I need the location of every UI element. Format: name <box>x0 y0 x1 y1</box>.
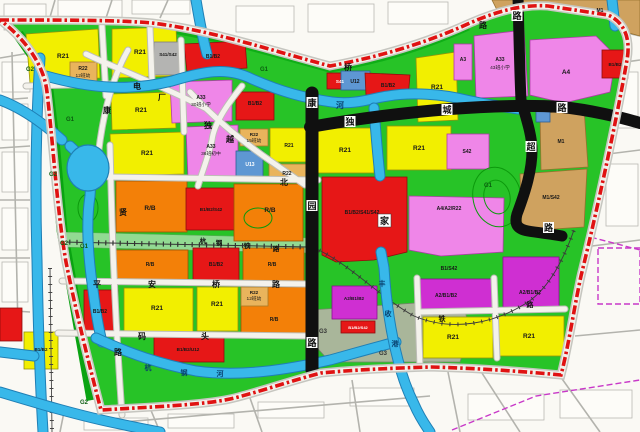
parcel-label: S42 <box>463 149 472 155</box>
road-char-bei: 北 <box>280 177 288 187</box>
road-char-matou: 头 <box>201 331 209 341</box>
zone-label-g2: G2 <box>60 241 69 247</box>
river-char-fengshou: 丰 <box>379 279 386 288</box>
parcel-label: A33 <box>206 144 215 150</box>
parcel-label: B1/B2/S42 <box>200 207 223 212</box>
parcel-label: R21 <box>211 301 223 308</box>
parcel-label: B1/B2 <box>248 101 262 107</box>
zone-label-g1: G1 <box>66 117 75 123</box>
road-char: 超 <box>525 141 536 152</box>
river-char-fengshou: 收 <box>385 309 393 318</box>
parcel-label: M1/S42 <box>542 195 559 201</box>
park-pond <box>67 145 109 191</box>
parcel-label: A4/A2/R22 <box>437 206 462 212</box>
parcel-label: R21 <box>134 49 146 56</box>
zone-label-g2: G2 <box>26 67 35 73</box>
road-char-pingan: 安 <box>148 279 156 289</box>
parcel-label: M1 <box>558 139 565 145</box>
parcel-label: R21 <box>57 53 69 60</box>
road-char: 园 <box>307 201 316 211</box>
river-char: 杭 <box>145 363 152 372</box>
river-char: 钢 <box>181 368 188 377</box>
parcel-label: A3 <box>460 57 467 63</box>
parcel-sublabel: 12班幼 <box>76 72 91 79</box>
parcel-label: B1/B2/S41/S42 <box>345 210 380 216</box>
parcel-label: R21 <box>413 145 425 152</box>
parcel-sublabel: 15班幼 <box>247 137 262 144</box>
parcel-label: R/B <box>264 207 276 214</box>
parcel-label: R22 <box>250 290 259 295</box>
road-char: 康 <box>307 97 317 108</box>
parcel-label: A4 <box>562 69 571 76</box>
parcel-label: M1 <box>597 8 604 14</box>
railway-char: 路 <box>273 244 280 253</box>
road-char: 城 <box>442 104 451 115</box>
zone-label-g3: G3 <box>319 329 328 335</box>
road-char-kang: 康 <box>103 105 112 115</box>
parcel-label: B1/B2 <box>608 62 621 67</box>
zone-label-g1: G1 <box>80 244 89 250</box>
river-char-he: 河 <box>336 100 344 110</box>
zone-label-g2: G2 <box>80 400 89 406</box>
parcel-label: R21 <box>135 107 147 114</box>
zone-label-g1: G1 <box>260 67 269 73</box>
jia-char: 家 <box>380 215 390 226</box>
parcel-label: U12 <box>350 79 359 85</box>
parcel-label: B1/B2/U12 <box>177 347 200 352</box>
railway-char: 路 <box>527 300 535 309</box>
parcel-label: B1/B2 <box>34 347 47 352</box>
jia-marker: 家 <box>378 214 391 227</box>
road-char-outer: 桥 <box>344 62 353 72</box>
parcel-label: B1/B2 <box>209 262 223 268</box>
parcel-label: S41/S42 <box>159 52 177 57</box>
river-char: 河 <box>217 369 224 378</box>
road-char: 路 <box>307 337 317 348</box>
parcel-label: B1/B2 <box>93 309 107 315</box>
road-char-dian: 电 <box>133 81 141 91</box>
parcel-label: S41 <box>336 79 345 84</box>
road-char-pingan: 平 <box>93 280 101 289</box>
parcel-r21-10 <box>197 287 238 331</box>
zone-label-g2: G2 <box>49 172 58 178</box>
parcel-label: R21 <box>151 305 163 312</box>
road-char: 独 <box>344 116 354 127</box>
parcel-sublabel: 30班小学 <box>191 101 211 108</box>
road-char-chang: 厂 <box>158 93 166 102</box>
railway-char: 铁 <box>439 314 446 323</box>
river-char-fengshou: 港 <box>392 339 400 348</box>
road-char-xian: 路 <box>114 347 123 357</box>
parcel-label: A33 <box>495 57 504 63</box>
parcel-label: A33 <box>196 95 205 101</box>
road-char-pingan: 路 <box>272 279 281 289</box>
road-char-yue: 越 <box>225 134 235 144</box>
parcel-label: R21 <box>431 84 443 91</box>
parcel-sublabel: 12班幼 <box>247 295 262 302</box>
parcel-label: R21 <box>523 333 535 340</box>
zone-label-g1: G1 <box>484 183 493 189</box>
parcel-label: A2/B1/B2 <box>519 290 541 296</box>
road-char-pingan: 桥 <box>212 279 221 289</box>
parcel-label: R21 <box>284 143 293 149</box>
parcel-label: B1/B2 <box>206 54 220 60</box>
zone-label-g3: G3 <box>379 351 388 357</box>
railway-char: 铁 <box>243 241 251 250</box>
parcel-label: R/B <box>268 262 277 268</box>
parcel-label: B1/B2/S42 <box>348 325 368 330</box>
parcel-label: R/B <box>144 205 156 212</box>
parcel-label: R22 <box>250 132 259 137</box>
parcel-label: A2/B1/B2 <box>435 293 457 299</box>
parcel-a2-b1b2-1 <box>332 286 377 319</box>
parcel-label: U13 <box>245 162 254 168</box>
parcel-sublabel: 36班初中 <box>201 150 221 157</box>
parcel-label: R/B <box>146 262 155 268</box>
road-char-matou: 码 <box>138 332 146 341</box>
parcel-label: R/B <box>270 317 279 323</box>
railway-char: 杭 <box>200 236 207 245</box>
parcel-a4-a2-r22 <box>409 196 504 256</box>
parcel-label: A2/B1/B2 <box>344 296 365 301</box>
railway-char: 钢 <box>216 238 223 247</box>
road-char-xian: 贤 <box>119 208 127 217</box>
parcel-label: R22 <box>78 66 87 72</box>
parcel-label: R22 <box>282 171 291 177</box>
road-char: 路 <box>512 10 522 21</box>
road-char-du: 独 <box>203 120 212 130</box>
parcel-label: R21 <box>447 334 459 341</box>
planning-map: R21 R21 R21 R21 R22 12班幼 S41/S42 B1/B2 B… <box>0 0 640 432</box>
parcel-label: R21 <box>339 147 351 154</box>
parcel-label: B1/S42 <box>441 266 458 272</box>
parcel-label: B1/B2 <box>381 83 395 89</box>
parcel-b1b2-s41-s42-big <box>322 177 407 262</box>
road-char-outer: 路 <box>479 20 488 30</box>
road-char: 路 <box>544 222 554 233</box>
parcel-sublabel: 43班小学 <box>490 64 510 71</box>
road-char: 路 <box>557 102 567 113</box>
parcel-label: R21 <box>141 150 153 157</box>
parcel-b1b2-west-edge <box>0 308 22 341</box>
